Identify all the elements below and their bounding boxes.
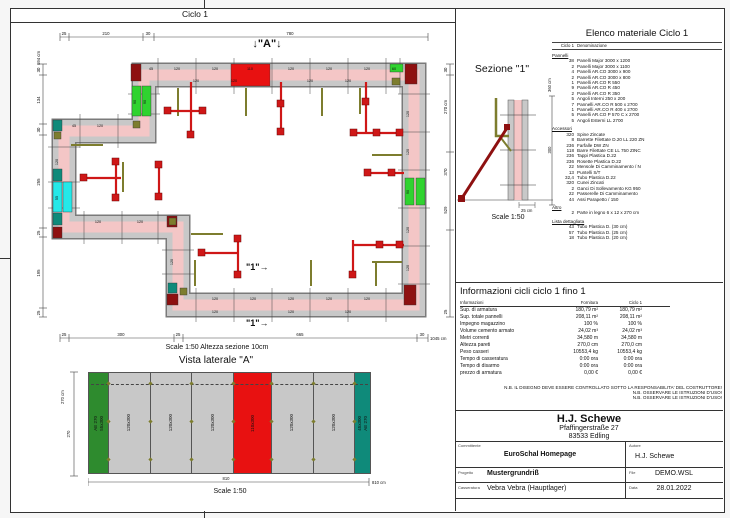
- cyan-accent-panel: [63, 182, 72, 212]
- dimension-label: 370: [443, 168, 448, 176]
- side-view-panels: AE 27055x300120x300120x300120x300110x300…: [88, 372, 371, 474]
- tie-plate: [155, 193, 162, 200]
- material-row: 18Tubo Plastica D. (20 cm): [552, 235, 722, 240]
- panel-label: AE 270: [363, 416, 369, 431]
- client-value: EuroSchal Homepage: [455, 451, 625, 458]
- panel-size-label: 120: [364, 67, 370, 71]
- fold-mark-bottom: [204, 511, 205, 518]
- tie-plate: [164, 107, 171, 114]
- panel-size-label: 90: [133, 100, 137, 104]
- tie-plate: [362, 98, 369, 105]
- cycle-info-table: InformazioniFornituraCiclo 1Sup. di arma…: [460, 300, 670, 377]
- disclaimer-notes: N.B. IL DISEGNO DEVE ESSERE CONTROLLATO …: [440, 385, 722, 401]
- dimension-label: 30: [443, 67, 448, 72]
- section-a-marker: ↓"A"↓: [236, 38, 298, 50]
- client-label: Committente: [458, 443, 481, 448]
- tie-plate: [350, 129, 357, 136]
- company-address2: 83533 Edling: [455, 433, 723, 440]
- material-row: 2Parte in legno 6 x 12 x 270 cm: [552, 210, 722, 215]
- tie-plate: [80, 174, 87, 181]
- cycle-info-row: Sup. di armatura180,79 m²180,79 m²: [460, 307, 670, 314]
- tie-plate: [396, 241, 403, 248]
- dimension-label: 270 cm: [443, 100, 448, 115]
- author-value: H.J. Schewe: [635, 453, 674, 460]
- panel-size-label: 120: [212, 310, 218, 314]
- dimension-label: 300: [117, 332, 125, 337]
- tie-plate: [234, 235, 241, 242]
- tie-plate: [155, 161, 162, 168]
- panel-size-label: 45: [149, 67, 153, 71]
- cycle-info-row: Metri correnti34,580 m34,580 m: [460, 335, 670, 342]
- olive-accent-panel: [169, 218, 176, 225]
- olive-accent-panel: [54, 132, 61, 139]
- side-view-panel: 45x300AE 270: [354, 373, 370, 473]
- olive-accent-panel: [392, 78, 400, 85]
- panel-size-label: 120: [288, 310, 294, 314]
- panel-size-label: 120: [97, 124, 103, 128]
- formwork-label: Casseratura: [458, 485, 480, 490]
- formwork-value: Vebra Vebra (Hauptlager): [487, 485, 566, 492]
- tie-plate: [187, 131, 194, 138]
- panel-size-label: 120: [326, 297, 332, 301]
- project-value: Mustergrundriß: [487, 470, 539, 477]
- side-view-panel: AE 27055x300: [89, 373, 108, 473]
- dimension-label: 665: [296, 332, 304, 337]
- tie-level-dashed-line: [91, 384, 368, 385]
- side-view-panel: 120x300: [150, 373, 192, 473]
- panel-size-label: 120: [231, 79, 237, 83]
- panel-size-label: 55: [55, 196, 59, 200]
- panel-label: 120x300: [331, 414, 337, 431]
- side-view-panel: 120x300: [313, 373, 355, 473]
- material-list-body: Pannelli38Panelli Major 3000 x 12002Pane…: [552, 53, 722, 240]
- plan-scale-note: Scale 1:50 Altezza sezione 10cm: [112, 344, 322, 351]
- dimension-label: 1045 cm: [430, 336, 447, 341]
- panel-size-label: 120: [406, 265, 410, 271]
- panel-label: 120x300: [210, 414, 216, 431]
- panel-size-label: 120: [288, 67, 294, 71]
- cycle-info-row: Sup. totale pannelli208,11 m²208,11 m²: [460, 314, 670, 321]
- dimension-label: 195: [36, 269, 41, 277]
- dim-270: 270: [66, 430, 71, 438]
- teal-accent-panel: [53, 213, 62, 225]
- dim-810: 810: [223, 476, 231, 481]
- tie-plate: [396, 129, 403, 136]
- olive-accent-panel: [133, 121, 140, 128]
- dimension-label: 30: [36, 67, 41, 72]
- panel-size-label: 120: [288, 297, 294, 301]
- panel-size-label: 90: [406, 190, 410, 194]
- dimension-label: 25: [36, 310, 41, 315]
- panel-size-label: 120: [326, 67, 332, 71]
- project-label: Progetto: [458, 470, 473, 475]
- tie-plate: [112, 158, 119, 165]
- material-list-title: Elenco materiale Ciclo 1: [552, 28, 722, 39]
- title-block: H.J. Schewe Pfaffingerstraße 27 83533 Ed…: [455, 410, 723, 499]
- teal-accent-panel: [53, 120, 62, 131]
- panel-label: 110x300: [250, 415, 256, 432]
- panel-size-label: 120: [170, 259, 174, 265]
- info-divider: [455, 282, 723, 283]
- tie-plate: [277, 128, 284, 135]
- panel-size-label: 120: [406, 111, 410, 117]
- cycle-info-row: Altezza pareti270,0 cm270,0 cm: [460, 342, 670, 349]
- cycle-info-title: Informazioni cicli ciclo 1 fino 1: [460, 286, 670, 297]
- cycle-info-row: Peso casseri10553,4 kg10553,4 kg: [460, 349, 670, 356]
- panel-size-label: 120: [406, 149, 410, 155]
- dimension-label: 694 cm: [36, 51, 41, 66]
- tie-plate: [388, 169, 395, 176]
- section-1-marker-lower: "1"→: [246, 318, 269, 328]
- company-name: H.J. Schewe: [455, 413, 723, 425]
- panel-size-label: 120: [193, 79, 199, 83]
- dimension-label: 25: [62, 31, 67, 36]
- dimension-label: 529: [443, 206, 448, 214]
- dimension-label: 30: [146, 31, 151, 36]
- note-line: N.B. OSSERVARE LE ISTRUZIONI D'USO!: [440, 395, 722, 400]
- cycle-title: Ciclo 1: [60, 9, 330, 19]
- panel-label: 45x300: [357, 416, 363, 431]
- tie-plate: [349, 271, 356, 278]
- panel-size-label: 120: [406, 227, 410, 233]
- dimension-label: 25: [62, 332, 67, 337]
- author-label: Autore: [629, 443, 641, 448]
- panel-label: AE 270: [93, 416, 99, 431]
- panel-size-label: 120: [212, 297, 218, 301]
- tie-plate: [199, 107, 206, 114]
- cycle-info-row: Tempo di disarmo0:00 ora0:00 ora: [460, 363, 670, 370]
- section-view: 25 cm: [455, 58, 555, 233]
- darkred-accent-panel: [405, 64, 417, 84]
- cycle-info-row: Tempo di casseratura0:00 ora0:00 ora: [460, 356, 670, 363]
- cycle-info: Informazioni cicli ciclo 1 fino 1 Inform…: [460, 286, 670, 377]
- panel-size-label: 45: [72, 124, 76, 128]
- material-list-header: Ciclo 1 Denominazione: [552, 42, 722, 50]
- panel-size-label: 120: [95, 220, 101, 224]
- material-row: 44Assi Parapetto / 150: [552, 197, 722, 202]
- cycle-info-row: Impegno magazzino100 %100 %: [460, 321, 670, 328]
- dim-25cm: 25 cm: [521, 208, 533, 213]
- panel-size-label: 120: [137, 220, 143, 224]
- panel-size-label: 120: [307, 79, 313, 83]
- cycle-info-row: prezzo di armatura0,00 €0,00 €: [460, 370, 670, 377]
- section-1-marker-upper: "1"→: [246, 262, 269, 272]
- panel-size-label: 120: [55, 159, 59, 165]
- olive-accent-panel: [180, 288, 187, 295]
- panel-label: 120x300: [289, 414, 295, 431]
- dimension-label: 210: [102, 31, 110, 36]
- darkred-accent-panel: [131, 64, 141, 81]
- section-view-scale: Scale 1:50: [478, 214, 538, 221]
- darkred-accent-panel: [167, 294, 178, 305]
- formwork-plan-view: 4512012011012012012060120120120120120120…: [28, 22, 458, 352]
- tie-plate: [364, 169, 371, 176]
- panel-size-label: 60: [392, 67, 396, 71]
- panel-label: 55x300: [99, 416, 105, 431]
- side-view-panel: 110x300: [233, 373, 271, 473]
- dimension-label: 25: [36, 230, 41, 235]
- brace-foot: [458, 195, 465, 202]
- material-row: 5Angoli Esterni LL 2700: [552, 118, 722, 123]
- panel-size-label: 120: [250, 297, 256, 301]
- dimension-label: 255: [36, 178, 41, 186]
- panel-label: 120x300: [168, 414, 174, 431]
- col-header-name: Denominazione: [577, 43, 607, 49]
- material-list: Elenco materiale Ciclo 1 Ciclo 1 Denomin…: [552, 28, 722, 240]
- fold-mark-top: [204, 0, 205, 8]
- tie-plate: [277, 100, 284, 107]
- dimension-label: 30: [36, 127, 41, 132]
- side-view-panel: 120x300: [191, 373, 233, 473]
- green-accent-panel: [416, 178, 425, 205]
- side-view-scale: Scale 1:50: [185, 488, 275, 495]
- col-header-cycle: Ciclo 1: [552, 43, 574, 49]
- dimension-label: 780: [286, 31, 294, 36]
- dimension-label: 25: [176, 332, 181, 337]
- panel-size-label: 120: [174, 67, 180, 71]
- panel-size-label: 120: [345, 310, 351, 314]
- side-view-left-dim: 270 cm 270: [58, 368, 82, 480]
- file-value: DEMO.WSL: [625, 470, 723, 477]
- drawing-page: Ciclo 1 45120120110120120120601201201201…: [0, 0, 730, 518]
- tie-plate: [234, 271, 241, 278]
- side-view-title: Vista laterale "A": [126, 355, 306, 366]
- brace-head: [504, 124, 510, 130]
- tie-plate: [373, 129, 380, 136]
- fold-mark-left: [0, 258, 10, 259]
- tie-plate: [112, 194, 119, 201]
- company-address1: Pfaffingerstraße 27: [455, 425, 723, 432]
- side-view-panel: 120x300: [271, 373, 313, 473]
- teal-accent-panel: [53, 169, 62, 181]
- cycle-info-header: InformazioniFornituraCiclo 1: [460, 300, 670, 307]
- darkred-accent-panel: [53, 227, 62, 238]
- panel-label: 120x300: [126, 414, 132, 431]
- panel-size-label: 120: [212, 67, 218, 71]
- dim-810cm: 810 cm: [372, 480, 386, 485]
- panel-size-label: 120: [345, 79, 351, 83]
- teal-accent-panel: [168, 283, 177, 293]
- dimension-label: 134: [36, 96, 41, 104]
- panel-size-label: 90: [143, 100, 147, 104]
- date-value: 28.01.2022: [625, 485, 723, 492]
- dim-270cm: 270 cm: [60, 390, 65, 404]
- dimension-label: 30: [420, 332, 425, 337]
- push-pull-brace: [462, 128, 507, 198]
- side-view-panel: 120x300: [108, 373, 150, 473]
- tie-plate: [376, 241, 383, 248]
- dimension-label: 25: [443, 309, 448, 314]
- panel-size-label: 110: [247, 67, 253, 71]
- cycle-info-row: Volume cemento armato24,02 m³24,02 m³: [460, 328, 670, 335]
- tie-plate: [198, 249, 205, 256]
- panel-size-label: 120: [364, 297, 370, 301]
- darkred-accent-panel: [404, 285, 416, 305]
